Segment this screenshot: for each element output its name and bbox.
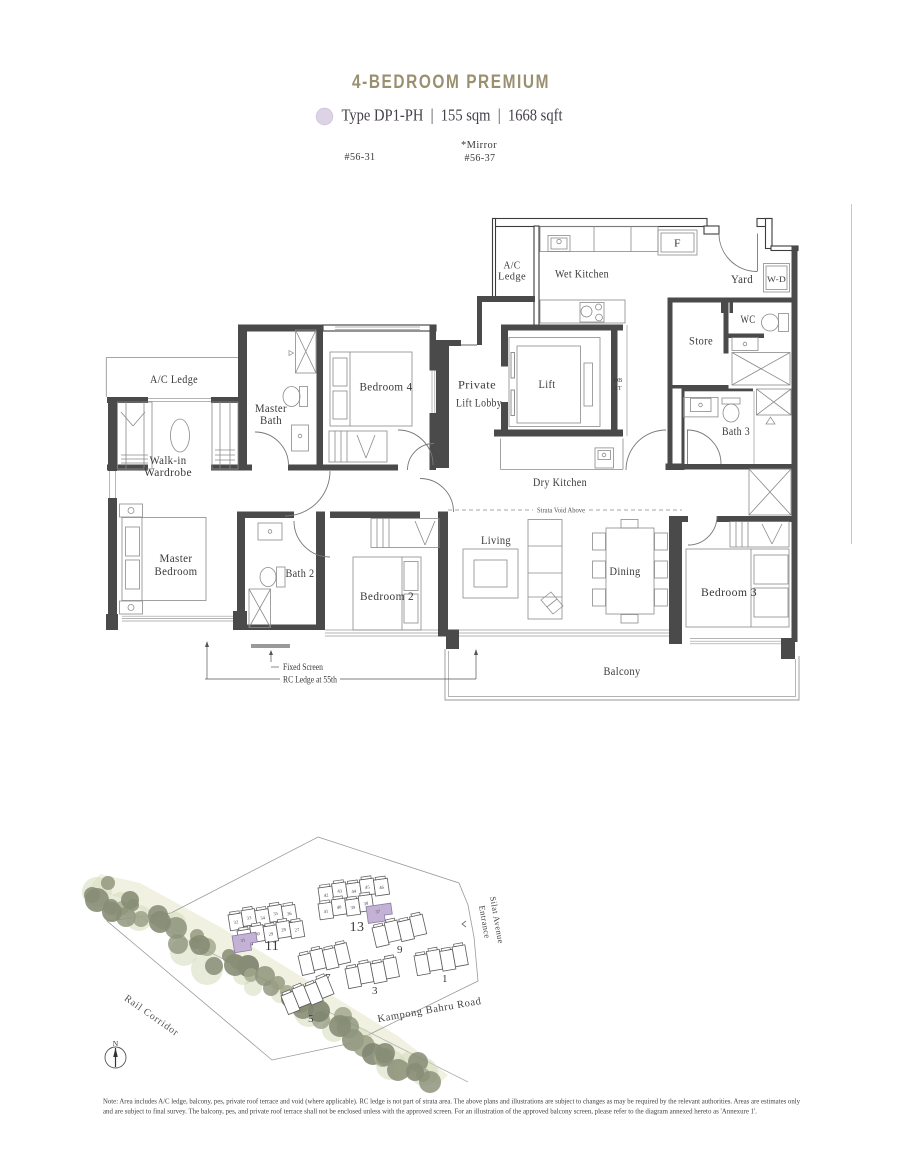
svg-text:Store: Store xyxy=(689,334,713,348)
svg-text:Note: Area includes A/C ledge,: Note: Area includes A/C ledge, balcony, … xyxy=(103,1099,801,1106)
svg-text:3: 3 xyxy=(372,985,378,997)
svg-text:Balcony: Balcony xyxy=(604,664,641,678)
svg-text:N: N xyxy=(113,1039,119,1048)
svg-text:Private: Private xyxy=(458,378,496,392)
svg-text:WC: WC xyxy=(741,314,756,326)
svg-text:Bath 3: Bath 3 xyxy=(722,424,750,438)
svg-text:Dry Kitchen: Dry Kitchen xyxy=(533,475,587,489)
svg-text:DB: DB xyxy=(614,377,623,384)
svg-text:Yard: Yard xyxy=(731,272,753,286)
svg-text:Rail Corridor: Rail Corridor xyxy=(122,993,181,1039)
svg-text:*Mirror: *Mirror xyxy=(461,140,497,151)
svg-text:Bath: Bath xyxy=(260,413,282,427)
svg-text:Fixed Screen: Fixed Screen xyxy=(283,662,323,672)
svg-text:13: 13 xyxy=(350,920,365,935)
svg-text:ST: ST xyxy=(614,385,621,392)
svg-text:Kampong Bahru Road: Kampong Bahru Road xyxy=(377,996,483,1025)
svg-text:Bedroom 3: Bedroom 3 xyxy=(701,585,757,599)
svg-text:Dining: Dining xyxy=(610,564,641,578)
svg-text:Strata Void Above: Strata Void Above xyxy=(537,507,585,515)
svg-text:5: 5 xyxy=(308,1013,314,1025)
svg-text:RC Ledge at 55th: RC Ledge at 55th xyxy=(283,675,337,685)
svg-text:#56-31: #56-31 xyxy=(345,152,376,163)
svg-text:Lift: Lift xyxy=(539,377,556,391)
svg-text:1: 1 xyxy=(442,973,448,985)
svg-text:Bedroom 2: Bedroom 2 xyxy=(360,589,414,603)
svg-text:11: 11 xyxy=(265,939,279,954)
svg-text:9: 9 xyxy=(397,944,403,956)
svg-text:Living: Living xyxy=(481,533,511,547)
svg-text:Wet Kitchen: Wet Kitchen xyxy=(555,267,609,281)
svg-text:W-D: W-D xyxy=(767,274,786,284)
svg-text:and are subject to final surve: and are subject to final survey. The bal… xyxy=(103,1109,757,1116)
svg-text:Bedroom: Bedroom xyxy=(155,564,198,578)
svg-text:Ledge: Ledge xyxy=(498,271,526,283)
svg-text:Bedroom 4: Bedroom 4 xyxy=(360,380,413,394)
svg-text:Type DP1-PH | 155 sqm | 16: Type DP1-PH | 155 sqm | 1668 sqft xyxy=(342,106,563,125)
svg-text:A/C Ledge: A/C Ledge xyxy=(150,372,198,386)
svg-text:Wardrobe: Wardrobe xyxy=(144,465,192,479)
svg-text:Master: Master xyxy=(160,551,193,565)
svg-text:4-BEDROOM PREMIUM: 4-BEDROOM PREMIUM xyxy=(352,71,550,93)
svg-text:#56-37: #56-37 xyxy=(465,153,496,164)
svg-text:Lift Lobby: Lift Lobby xyxy=(456,396,502,410)
svg-text:F: F xyxy=(674,239,681,250)
svg-text:Bath 2: Bath 2 xyxy=(286,566,315,580)
